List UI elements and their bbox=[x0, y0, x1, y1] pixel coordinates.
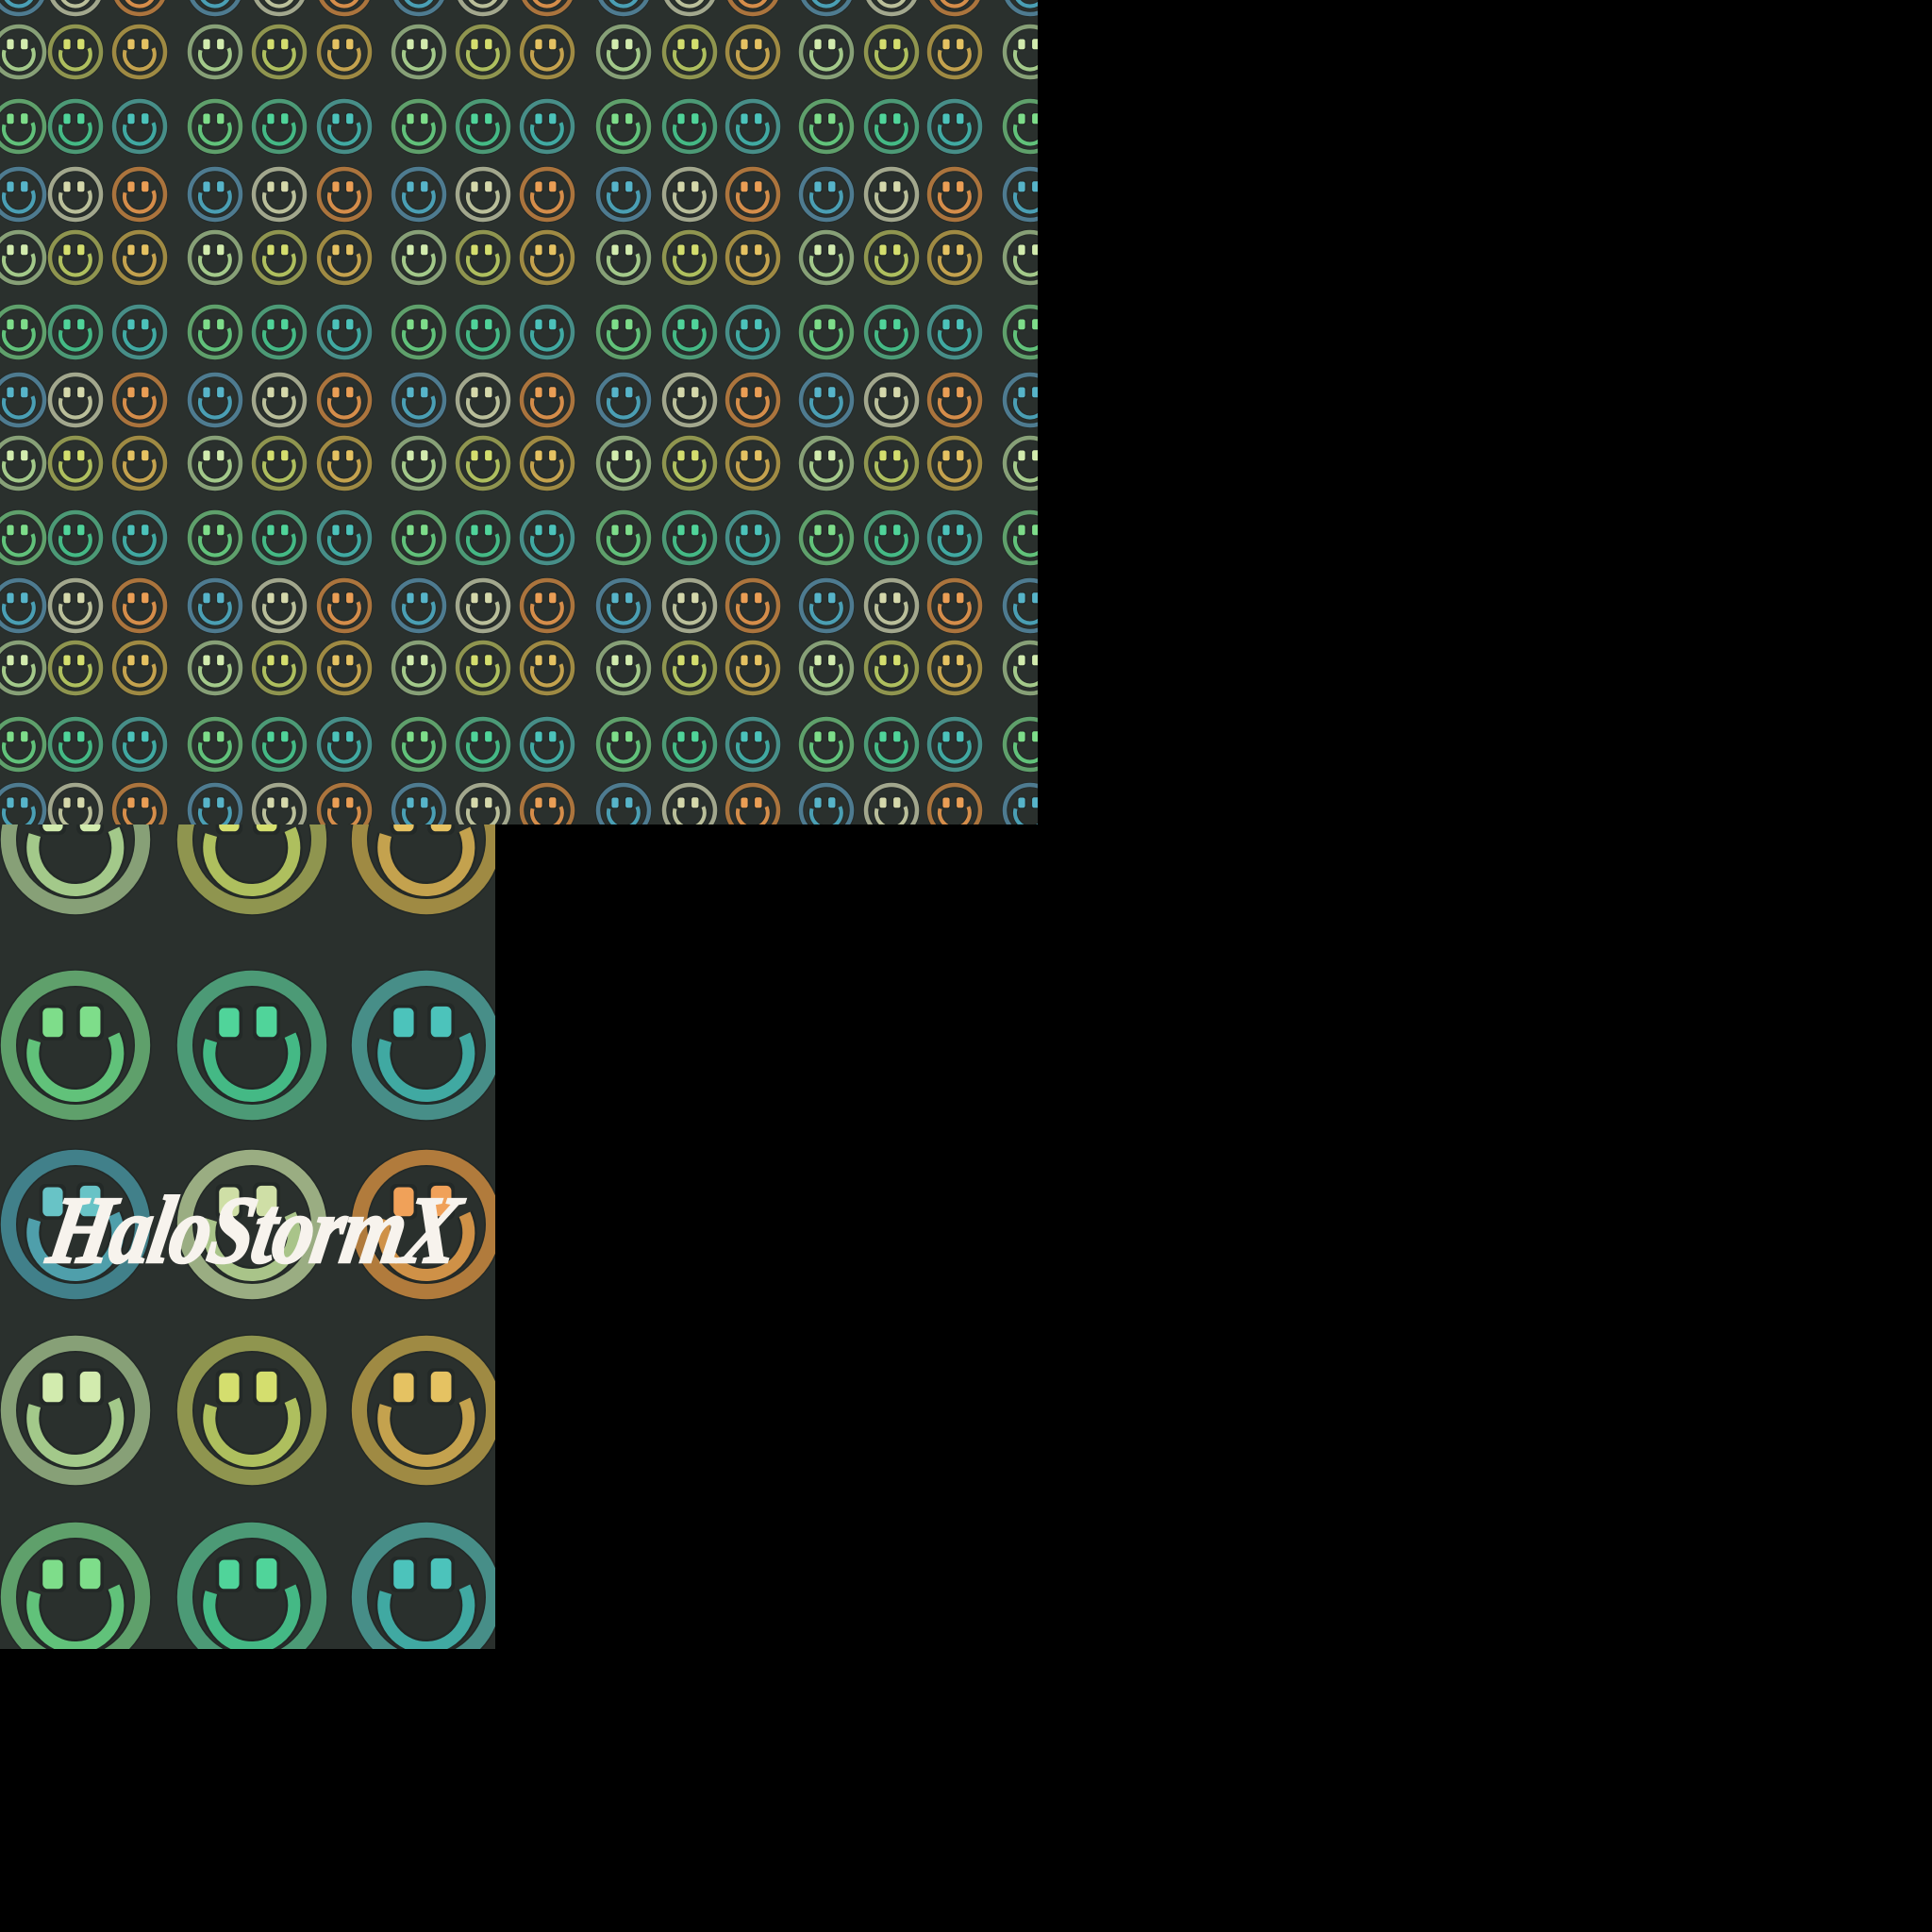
svg-text:HaloStormX: HaloStormX bbox=[41, 1176, 471, 1284]
